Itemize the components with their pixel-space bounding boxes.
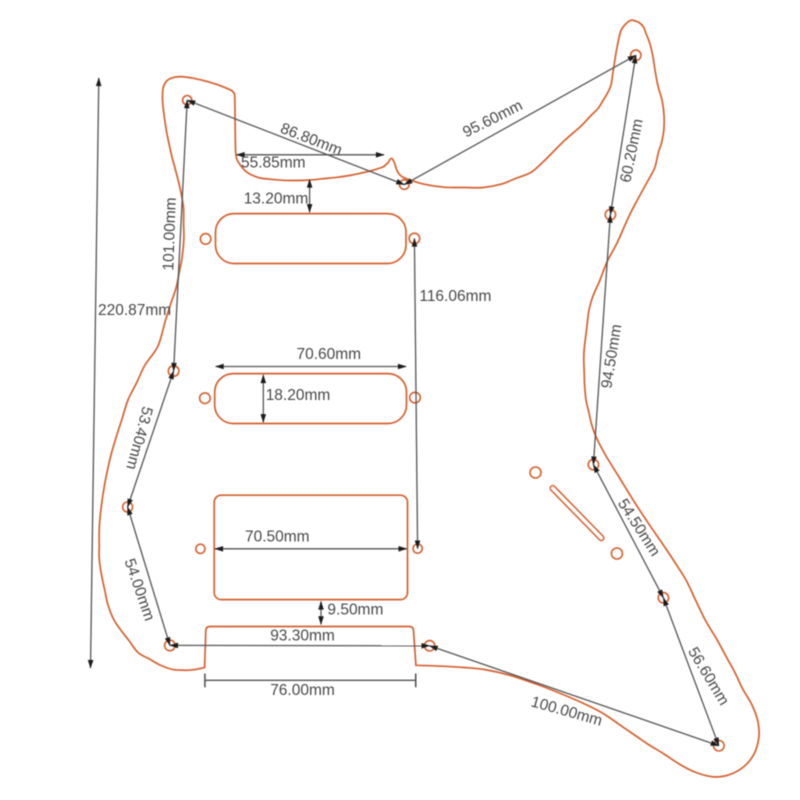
svg-text:9.50mm: 9.50mm [327, 601, 383, 618]
svg-text:70.50mm: 70.50mm [245, 529, 310, 546]
svg-text:76.00mm: 76.00mm [270, 682, 335, 699]
svg-text:93.30mm: 93.30mm [270, 628, 335, 645]
svg-text:116.06mm: 116.06mm [419, 288, 491, 305]
svg-text:18.20mm: 18.20mm [266, 387, 331, 404]
svg-text:220.87mm: 220.87mm [98, 302, 171, 319]
svg-text:101.00mm: 101.00mm [160, 197, 180, 271]
svg-text:70.60mm: 70.60mm [296, 346, 361, 363]
svg-text:55.85mm: 55.85mm [241, 154, 306, 171]
svg-text:13.20mm: 13.20mm [244, 191, 309, 208]
